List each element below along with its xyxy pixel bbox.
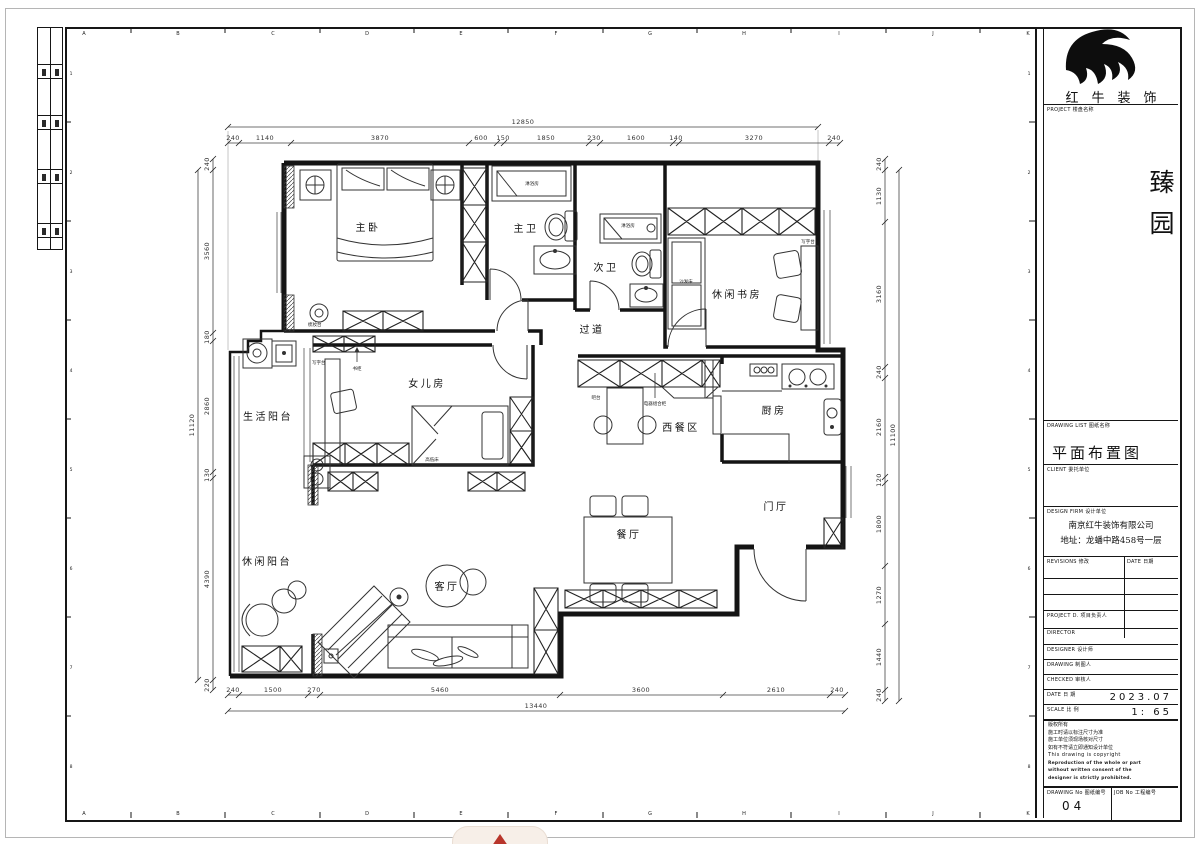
svg-text:140: 140	[669, 134, 683, 142]
room-label-corridor: 过道	[580, 323, 605, 336]
svg-text:2860: 2860	[203, 397, 211, 415]
note-line: Reproduction of the whole or part	[1048, 760, 1141, 768]
cabinet-boxes	[242, 168, 843, 674]
stove	[782, 364, 834, 389]
doors	[490, 269, 806, 601]
number-cell-divider	[1111, 788, 1112, 820]
note-line: 施工单位须现场核对尺寸	[1048, 737, 1141, 745]
svg-text:7: 7	[70, 665, 73, 671]
copyright-notes: 版权所有 施工时请以标注尺寸为准 施工单位须现场核对尺寸 如有不符请立即通知设计…	[1048, 722, 1141, 782]
title-block: 红牛装饰 PROJECT 楼盘名称 臻园 DRAWING LIST 图纸名称 平…	[1043, 27, 1178, 818]
svg-text:A: A	[82, 31, 86, 37]
svg-text:3560: 3560	[203, 242, 211, 260]
svg-text:240: 240	[875, 157, 883, 171]
date-col-label: DATE 日期	[1127, 558, 1154, 565]
svg-text:2: 2	[70, 170, 73, 176]
svg-text:I: I	[838, 811, 839, 817]
svg-text:1440: 1440	[875, 648, 883, 666]
grid-numbers-left: 12345678	[70, 71, 73, 770]
svg-text:1500: 1500	[264, 686, 282, 694]
svg-text:E: E	[459, 31, 462, 37]
room-label-leisure-balcony: 休闲阳台	[242, 555, 292, 568]
autocad-icon	[452, 826, 548, 844]
svg-text:6: 6	[1028, 566, 1031, 572]
note-line: without written consent of the	[1048, 767, 1141, 775]
grid-ticks	[65, 27, 1035, 818]
staff-row-label: DRAWING 制图人	[1047, 661, 1091, 668]
svg-text:G: G	[648, 31, 652, 37]
drawing-list-label: DRAWING LIST 图纸名称	[1047, 422, 1110, 429]
svg-text:600: 600	[474, 134, 488, 142]
svg-text:2610: 2610	[767, 686, 785, 694]
svg-text:J: J	[931, 31, 933, 37]
svg-text:3160: 3160	[875, 285, 883, 303]
label-shower-2: 淋浴房	[621, 222, 635, 229]
svg-text:120: 120	[875, 473, 883, 487]
svg-text:E: E	[459, 811, 462, 817]
svg-text:240: 240	[226, 134, 240, 142]
company-name: 南京红牛装饰有限公司	[1044, 519, 1178, 531]
balcony-sink	[272, 341, 296, 366]
note-line: 如有不符请立即通知设计单位	[1048, 745, 1141, 753]
svg-text:H: H	[742, 811, 746, 817]
sink-second	[630, 284, 663, 307]
label-desk-study: 写字台	[801, 238, 815, 245]
leisure-chair	[242, 604, 278, 636]
svg-text:1130: 1130	[875, 187, 883, 205]
svg-text:8: 8	[70, 764, 73, 770]
revision-date-divider	[1124, 557, 1125, 638]
label-appliance-cabinet: 电器组合柜	[644, 400, 667, 407]
label-bookcase: 书柜	[353, 365, 362, 372]
svg-text:3: 3	[1028, 269, 1031, 275]
room-label-service-balcony: 生活阳台	[243, 410, 293, 423]
grid-letters-top: ABCDEFGHIJK	[82, 31, 1030, 37]
note-line: 施工时请以标注尺寸为准	[1048, 730, 1141, 738]
svg-text:1850: 1850	[537, 134, 555, 142]
svg-text:8: 8	[1028, 764, 1031, 770]
staff-row-label: PROJECT D. 项目负责人	[1047, 612, 1107, 619]
room-label-master: 主卧	[356, 221, 381, 234]
svg-text:230: 230	[587, 134, 601, 142]
dimension-ticks	[195, 124, 902, 714]
bar-table	[594, 388, 656, 444]
toilet-master	[545, 211, 577, 241]
room-label-study: 休闲书房	[712, 288, 762, 301]
master-bath-door	[490, 269, 521, 300]
svg-text:220: 220	[203, 678, 211, 692]
dressing-stool	[310, 304, 328, 322]
walls	[230, 163, 843, 676]
svg-text:3270: 3270	[745, 134, 763, 142]
svg-text:2160: 2160	[875, 418, 883, 436]
kitchen-sink	[824, 399, 841, 435]
room-label-foyer: 门厅	[764, 500, 789, 513]
svg-text:3: 3	[70, 269, 73, 275]
svg-text:H: H	[742, 31, 746, 37]
svg-text:F: F	[555, 31, 558, 37]
design-firm-label: DESIGN FIRM 设计单位	[1047, 508, 1106, 515]
label-desk-daughter: 写字台	[312, 359, 326, 366]
drawing-number: 04	[1062, 799, 1085, 813]
dim-right-total: 11100	[889, 424, 897, 447]
job-no-label: JOB No 工程编号	[1114, 789, 1156, 796]
svg-text:5460: 5460	[431, 686, 449, 694]
grid-numbers-right: 12345678	[1028, 71, 1031, 770]
note-line: 版权所有	[1048, 722, 1141, 730]
room-label-western-dining: 西餐区	[662, 421, 700, 434]
note-line: designer is strictly prohibited.	[1048, 775, 1141, 783]
room-labels: 主卧 主卫 次卫 休闲书房 过道 女儿房 生活阳台 西餐区 厨房 门厅 餐厅 客…	[242, 221, 789, 593]
note-line: This drawing is copyright	[1048, 752, 1141, 760]
nightstand	[300, 170, 460, 200]
svg-text:D: D	[365, 811, 369, 817]
svg-text:K: K	[1026, 31, 1030, 37]
svg-text:150: 150	[496, 134, 510, 142]
room-label-daughter: 女儿房	[408, 377, 446, 390]
svg-text:F: F	[555, 811, 558, 817]
svg-text:5: 5	[70, 467, 73, 473]
daughter-bed	[412, 406, 508, 465]
svg-text:240: 240	[875, 688, 883, 702]
client-label: CLIENT 委托单位	[1047, 466, 1090, 473]
svg-text:270: 270	[307, 686, 321, 694]
svg-text:240: 240	[875, 365, 883, 379]
svg-text:5: 5	[1028, 467, 1031, 473]
svg-text:4390: 4390	[203, 570, 211, 588]
grid-references: ABCDEFGHIJK ABCDEFGHIJK 12345678 1234567…	[65, 27, 1035, 818]
svg-text:2: 2	[1028, 170, 1031, 176]
label-bar-counter: 吧台	[592, 394, 601, 401]
label-bunk-bed: 高低床	[425, 456, 439, 463]
dining-set	[584, 496, 672, 602]
svg-text:B: B	[176, 811, 180, 817]
room-label-kitchen: 厨房	[762, 404, 787, 417]
study-desk	[773, 246, 818, 330]
label-dressing-table: 梳妆台	[308, 321, 322, 328]
svg-text:C: C	[271, 31, 275, 37]
staff-row-label: DESIGNER 设计师	[1047, 646, 1093, 653]
svg-text:4: 4	[70, 368, 73, 374]
svg-text:C: C	[271, 811, 275, 817]
svg-text:1: 1	[1028, 71, 1031, 77]
living-sofa	[388, 625, 528, 668]
grid-letters-bottom: ABCDEFGHIJK	[82, 811, 1030, 817]
svg-text:J: J	[931, 811, 933, 817]
date-label: DATE 日 期	[1047, 691, 1076, 698]
daughter-room-door	[493, 345, 527, 379]
svg-text:1270: 1270	[875, 586, 883, 604]
study-door	[668, 309, 706, 347]
room-label-master-bath: 主卫	[514, 223, 539, 235]
master-bed	[337, 164, 433, 261]
svg-text:240: 240	[830, 686, 844, 694]
scale-label: SCALE 比 例	[1047, 706, 1079, 713]
drawing-sheet: ABCDEFGHIJK ABCDEFGHIJK 12345678 1234567…	[0, 0, 1200, 844]
staff-row-label: DIRECTOR	[1047, 630, 1075, 636]
exterior-walls	[230, 163, 843, 676]
svg-text:240: 240	[203, 157, 211, 171]
svg-text:180: 180	[203, 330, 211, 344]
svg-text:1600: 1600	[627, 134, 645, 142]
svg-text:240: 240	[827, 134, 841, 142]
revision-label: REVISIONS 修改	[1047, 558, 1089, 565]
floor-plan: ABCDEFGHIJK ABCDEFGHIJK 12345678 1234567…	[0, 0, 1200, 844]
svg-text:G: G	[648, 811, 652, 817]
master-bedroom-door	[497, 300, 528, 331]
svg-text:I: I	[838, 31, 839, 37]
kitchen-hob-unit	[750, 364, 777, 376]
svg-text:1: 1	[70, 71, 73, 77]
svg-text:D: D	[365, 31, 369, 37]
svg-text:6: 6	[70, 566, 73, 572]
svg-text:K: K	[1026, 811, 1030, 817]
project-label: PROJECT 楼盘名称	[1047, 106, 1094, 113]
corner-tv-bay	[662, 387, 718, 398]
room-label-second-bath: 次卫	[594, 261, 619, 274]
entry-door	[754, 549, 806, 601]
date-value: 2023.07	[1110, 692, 1172, 703]
svg-text:1140: 1140	[256, 134, 274, 142]
company-address: 地址：龙蟠中路458号一层	[1044, 534, 1178, 546]
label-shower-1: 淋浴房	[525, 180, 539, 187]
kitchen-counter	[722, 391, 789, 462]
chaise-lounge	[318, 586, 410, 678]
dim-top-total: 12850	[512, 118, 535, 126]
dimensions	[195, 124, 902, 714]
dim-bottom-total: 13440	[525, 702, 548, 710]
svg-text:240: 240	[226, 686, 240, 694]
label-sofa-bed: 沙发床	[679, 278, 693, 285]
svg-text:B: B	[176, 31, 180, 37]
room-label-dining: 餐厅	[617, 528, 642, 541]
kitchen-sliding-door	[713, 396, 721, 434]
svg-text:130: 130	[203, 468, 211, 482]
toilet-second	[632, 250, 661, 278]
dim-left-total: 11120	[188, 414, 196, 437]
project-name: 臻园	[1044, 145, 1178, 275]
svg-text:3870: 3870	[371, 134, 389, 142]
balcony-plants	[272, 581, 306, 613]
staff-row-label: CHECKED 审核人	[1047, 676, 1091, 683]
second-bath-door	[590, 281, 619, 310]
scale-value: 1: 65	[1131, 707, 1172, 718]
autocad-a-glyph	[485, 834, 515, 844]
drawing-title: 平面布置图	[1052, 442, 1142, 463]
drawing-no-label: DRAWING No 图纸编号	[1047, 789, 1106, 796]
svg-text:1800: 1800	[875, 515, 883, 533]
svg-text:A: A	[82, 811, 86, 817]
svg-text:3600: 3600	[632, 686, 650, 694]
room-label-living: 客厅	[435, 580, 460, 593]
svg-text:7: 7	[1028, 665, 1031, 671]
balcony-wall	[230, 331, 284, 676]
svg-text:4: 4	[1028, 368, 1031, 374]
sink-master	[534, 246, 576, 274]
